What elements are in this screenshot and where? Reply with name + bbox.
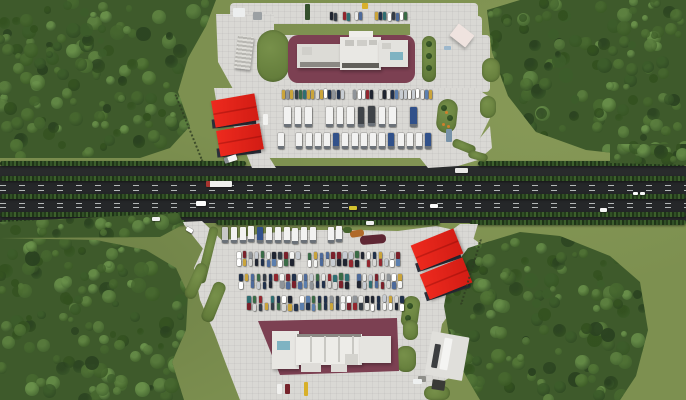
parked-car xyxy=(353,296,357,303)
parked-truck xyxy=(389,107,396,127)
parked-car xyxy=(328,274,332,281)
tree xyxy=(608,46,618,56)
tree xyxy=(39,228,47,236)
parked-car xyxy=(333,275,337,282)
parked-car xyxy=(383,12,386,20)
truck-service-lane xyxy=(455,168,468,173)
north-service-building-part xyxy=(345,40,354,46)
tree xyxy=(130,351,141,362)
tree xyxy=(540,131,548,139)
parked-car xyxy=(396,252,400,259)
tree xyxy=(119,228,130,239)
parked-car xyxy=(277,296,281,303)
shed-dark xyxy=(431,379,445,391)
south-service-building-part xyxy=(324,336,326,362)
tree xyxy=(164,378,179,393)
parked-car xyxy=(367,252,371,259)
tree xyxy=(554,39,564,49)
tree xyxy=(521,257,529,265)
tree xyxy=(100,11,112,23)
parked-car xyxy=(324,303,328,310)
tree xyxy=(587,45,599,57)
aerial-render-highway-rest-area xyxy=(0,0,686,400)
parked-truck xyxy=(326,107,333,127)
parked-car xyxy=(265,303,269,310)
highway-hedge xyxy=(0,161,246,166)
parked-car xyxy=(318,303,322,310)
tree xyxy=(543,362,556,375)
tree xyxy=(26,241,37,252)
tree xyxy=(615,114,622,121)
parked-truck xyxy=(284,107,291,127)
tree xyxy=(52,250,59,257)
parked-car xyxy=(322,274,326,281)
tree xyxy=(504,114,515,125)
parked-car xyxy=(286,90,289,99)
parked-car xyxy=(294,304,298,311)
tree xyxy=(130,312,140,322)
parked-car xyxy=(251,274,255,281)
parked-car xyxy=(381,273,385,280)
island-patch-1 xyxy=(403,320,418,340)
lane-dash-line xyxy=(0,185,686,186)
highway-carriageway-1 xyxy=(0,180,686,194)
tree xyxy=(542,11,552,21)
tree xyxy=(162,235,170,243)
parked-car xyxy=(284,252,288,259)
parked-car xyxy=(367,260,371,267)
tree xyxy=(110,331,116,337)
parked-car xyxy=(385,259,389,266)
tree xyxy=(539,325,549,335)
tree xyxy=(80,23,93,36)
tree xyxy=(93,321,104,332)
tree xyxy=(133,237,139,243)
tree xyxy=(626,63,638,75)
tree xyxy=(62,88,73,99)
island-scallop-1 xyxy=(482,58,500,82)
parked-car xyxy=(306,303,310,310)
tree xyxy=(143,345,153,355)
tree xyxy=(529,40,541,52)
tree xyxy=(88,284,98,294)
tree xyxy=(100,345,109,354)
parked-car xyxy=(365,296,369,303)
parked-car xyxy=(312,304,316,311)
parked-car xyxy=(249,259,253,266)
tree xyxy=(176,330,187,341)
tree xyxy=(617,21,632,36)
white-car-6 xyxy=(152,217,160,221)
tree xyxy=(166,32,173,39)
north-service-building-part xyxy=(382,43,391,49)
tree xyxy=(186,70,196,80)
parked-car xyxy=(387,281,391,288)
parked-car xyxy=(392,12,395,20)
tree xyxy=(592,289,600,297)
island-patch-2 xyxy=(396,346,416,372)
parked-truck xyxy=(301,227,307,243)
car-white-south xyxy=(277,384,282,394)
tree xyxy=(204,61,211,68)
parked-car xyxy=(408,90,411,99)
parked-car xyxy=(363,282,367,289)
tree xyxy=(631,21,639,29)
tree xyxy=(24,43,38,57)
north-service-building-part xyxy=(390,52,403,60)
car-white-south-2 xyxy=(413,379,422,384)
parked-car xyxy=(269,281,273,288)
tree xyxy=(92,121,99,128)
tree xyxy=(505,104,513,112)
parked-car xyxy=(371,304,375,311)
tree xyxy=(52,229,61,238)
tree xyxy=(37,311,46,320)
tree xyxy=(595,1,607,13)
tree xyxy=(127,59,137,69)
parked-car xyxy=(251,281,255,288)
south-service-building-part xyxy=(310,336,312,362)
north-service-building-part xyxy=(349,31,373,37)
tree xyxy=(649,74,658,83)
tree xyxy=(133,135,145,147)
tree xyxy=(10,139,23,152)
parked-car xyxy=(383,303,387,310)
parked-truck xyxy=(240,227,246,243)
parked-car xyxy=(314,252,318,259)
tree xyxy=(160,326,172,338)
parked-car xyxy=(322,281,326,288)
tree xyxy=(51,97,63,109)
parked-car xyxy=(361,252,365,259)
tree xyxy=(131,278,145,292)
tree xyxy=(544,62,553,71)
tree xyxy=(14,324,26,336)
parked-car xyxy=(375,274,379,281)
south-service-building-part xyxy=(331,364,347,372)
tree xyxy=(642,15,648,21)
parked-car xyxy=(261,251,265,258)
tree xyxy=(0,271,6,281)
tree xyxy=(491,349,505,363)
parked-car xyxy=(375,12,378,20)
tree xyxy=(70,98,77,105)
parked-car xyxy=(337,90,340,99)
tree xyxy=(101,121,109,129)
tree xyxy=(542,289,552,299)
tree xyxy=(565,331,577,343)
parked-car xyxy=(307,90,310,99)
tree xyxy=(58,141,66,149)
tree xyxy=(532,299,541,308)
parked-car xyxy=(336,296,340,303)
tree xyxy=(114,340,124,350)
parked-car xyxy=(261,259,265,266)
parked-car xyxy=(343,252,347,259)
parked-car xyxy=(429,90,432,99)
parked-car xyxy=(390,252,394,259)
tree xyxy=(503,18,512,27)
island-west-wedge xyxy=(257,30,289,82)
parked-car xyxy=(387,274,391,281)
tree xyxy=(112,301,118,307)
parked-car xyxy=(316,274,320,281)
parked-car xyxy=(239,282,243,289)
tree xyxy=(34,117,46,129)
parked-truck xyxy=(336,226,342,242)
tree xyxy=(538,308,551,321)
parked-car xyxy=(253,304,257,311)
tree xyxy=(664,94,675,105)
tree xyxy=(30,25,38,33)
tree xyxy=(175,243,182,250)
parked-car xyxy=(259,304,263,311)
north-canopy-2 xyxy=(216,123,264,156)
lane-dash-line xyxy=(0,207,686,208)
parked-car xyxy=(257,274,261,281)
parked-truck xyxy=(248,226,254,242)
flower-dot xyxy=(442,123,445,126)
tree xyxy=(571,95,580,104)
parked-car xyxy=(257,282,261,289)
parked-car xyxy=(398,274,402,281)
tree xyxy=(524,58,538,72)
tree xyxy=(30,75,44,89)
tree xyxy=(91,59,104,72)
island-scallop-2 xyxy=(480,96,496,118)
parked-car xyxy=(400,304,404,311)
tree xyxy=(46,21,56,31)
parked-car xyxy=(365,303,369,310)
parked-car xyxy=(379,259,383,266)
parked-car xyxy=(311,90,314,99)
parked-car xyxy=(330,296,334,303)
tree xyxy=(597,280,605,288)
tree xyxy=(623,84,629,90)
tree xyxy=(118,76,128,86)
tree xyxy=(559,68,573,82)
parked-car xyxy=(278,260,282,267)
tree xyxy=(200,54,211,65)
tree xyxy=(629,0,638,6)
tree xyxy=(107,374,115,382)
parked-car xyxy=(263,282,267,289)
parked-truck xyxy=(398,133,404,149)
parked-car xyxy=(304,281,308,288)
parked-car xyxy=(353,90,356,99)
parked-car xyxy=(330,303,334,310)
tree xyxy=(628,41,636,49)
highway-hedge xyxy=(216,220,440,225)
parked-car xyxy=(398,281,402,288)
semi-truck-westbound xyxy=(206,181,232,187)
parked-car xyxy=(359,12,362,20)
tree xyxy=(84,147,94,157)
tree xyxy=(0,81,12,95)
tree xyxy=(524,273,538,287)
parked-car xyxy=(306,296,310,303)
parked-car xyxy=(298,274,302,281)
tree xyxy=(41,250,52,261)
tree xyxy=(495,327,506,338)
parked-car xyxy=(362,90,365,99)
tree xyxy=(650,0,661,8)
white-car-1 xyxy=(366,221,374,225)
parked-car xyxy=(286,274,290,281)
parked-car xyxy=(392,274,396,281)
parked-car xyxy=(320,259,324,266)
parked-car xyxy=(259,296,263,303)
parked-car xyxy=(396,259,400,266)
tree xyxy=(109,279,118,288)
parked-car xyxy=(421,90,424,99)
tree xyxy=(635,380,644,389)
tree xyxy=(495,92,504,101)
north-service-building-part xyxy=(369,40,377,45)
tree xyxy=(158,109,166,117)
fuel-pump-island xyxy=(304,382,308,396)
parked-car xyxy=(290,90,293,99)
parked-car xyxy=(377,296,381,303)
tree xyxy=(555,348,562,355)
tree xyxy=(445,297,452,304)
tree xyxy=(145,93,156,104)
parked-car xyxy=(288,304,292,311)
tree xyxy=(554,381,566,393)
south-service-building-part xyxy=(272,331,299,369)
tree xyxy=(197,139,206,148)
tree xyxy=(133,115,143,125)
parked-car xyxy=(314,260,318,267)
tree xyxy=(524,266,531,273)
tree xyxy=(80,8,88,16)
tree xyxy=(84,218,95,229)
parked-car xyxy=(383,90,386,99)
tree xyxy=(159,245,166,252)
parked-truck xyxy=(379,107,386,127)
tree xyxy=(656,56,670,70)
tree xyxy=(69,112,83,126)
tree xyxy=(506,356,512,362)
parked-truck xyxy=(306,133,312,149)
parked-truck xyxy=(310,227,316,243)
white-car-3 xyxy=(640,192,645,195)
tree xyxy=(592,236,600,244)
parked-car xyxy=(288,296,292,303)
tree xyxy=(68,317,74,323)
tree xyxy=(641,29,650,38)
tree xyxy=(631,333,645,347)
parked-car xyxy=(337,259,341,266)
tree xyxy=(670,9,683,22)
tree xyxy=(118,95,125,102)
parked-car xyxy=(425,90,428,99)
tree xyxy=(614,154,621,161)
highway-hedge xyxy=(0,194,686,199)
parked-car xyxy=(366,90,369,99)
parked-car xyxy=(379,12,382,20)
tree xyxy=(516,116,526,126)
parked-car xyxy=(278,252,282,259)
tree xyxy=(98,25,106,33)
parked-car xyxy=(324,89,327,98)
parked-car xyxy=(286,282,290,289)
tree xyxy=(575,374,588,387)
parked-car xyxy=(292,281,296,288)
island-tree xyxy=(407,303,413,309)
tree xyxy=(57,69,68,80)
tree xyxy=(638,304,647,313)
parked-car xyxy=(303,90,306,99)
tree xyxy=(498,104,512,118)
tree xyxy=(575,355,590,370)
tree xyxy=(142,71,156,85)
tree xyxy=(59,313,67,321)
tree xyxy=(523,291,533,301)
parked-car xyxy=(400,12,403,20)
parked-car xyxy=(271,296,275,303)
parked-car xyxy=(345,274,349,281)
tree xyxy=(628,95,638,105)
tree xyxy=(624,229,638,243)
bus-north xyxy=(446,129,452,142)
tree xyxy=(613,59,623,69)
parked-car xyxy=(312,296,316,303)
island-tree xyxy=(447,115,453,121)
parked-car xyxy=(416,89,419,98)
highway-carriageway-2 xyxy=(0,199,686,212)
tree xyxy=(126,5,132,11)
white-car-4 xyxy=(600,208,607,212)
parked-truck xyxy=(266,227,272,243)
tree xyxy=(132,220,145,233)
parked-car xyxy=(359,303,363,310)
parked-car xyxy=(282,304,286,311)
parked-truck xyxy=(295,107,302,127)
yellow-shed xyxy=(362,3,368,9)
lane-dash-line xyxy=(0,203,686,204)
parked-car xyxy=(395,90,398,99)
parked-car xyxy=(300,303,304,310)
parked-car xyxy=(373,252,377,259)
parked-truck xyxy=(407,133,413,149)
tree xyxy=(150,354,165,369)
car-red-south xyxy=(285,384,290,394)
tree xyxy=(0,17,10,28)
parked-car xyxy=(269,274,273,281)
tree xyxy=(64,262,73,271)
parked-car xyxy=(277,303,281,310)
parked-car xyxy=(404,12,407,20)
parked-car xyxy=(400,296,404,303)
tree xyxy=(536,243,547,254)
parked-car xyxy=(339,273,343,280)
parked-truck xyxy=(370,133,376,149)
parked-car xyxy=(353,303,357,310)
tree xyxy=(1,321,12,332)
tree xyxy=(186,4,201,19)
parked-car xyxy=(358,90,361,99)
parked-car xyxy=(247,296,251,303)
tree xyxy=(588,364,598,374)
green-container xyxy=(305,4,310,20)
parked-car xyxy=(389,303,393,310)
tree xyxy=(98,2,108,12)
tree xyxy=(501,243,510,252)
parked-truck xyxy=(347,107,354,127)
tree xyxy=(172,341,179,348)
tree xyxy=(559,125,567,133)
